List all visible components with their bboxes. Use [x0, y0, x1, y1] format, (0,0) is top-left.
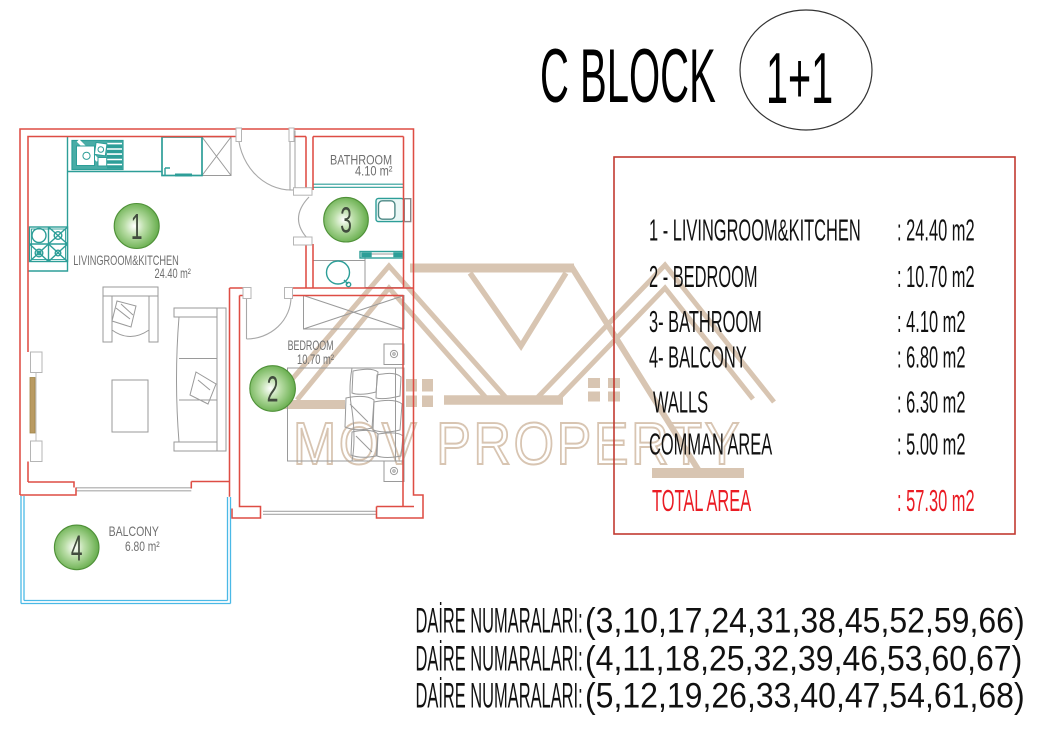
svg-text:COMMAN AREA: COMMAN AREA [649, 428, 772, 462]
svg-text:: 6.30 m2: : 6.30 m2 [897, 386, 965, 420]
svg-text:: 6.80 m2: : 6.80 m2 [897, 341, 965, 375]
svg-text:LIVINGROOM&KITCHEN: LIVINGROOM&KITCHEN [73, 254, 179, 268]
svg-text:2 - BEDROOM: 2 - BEDROOM [649, 261, 758, 295]
svg-text:(5,12,19,26,33,40,47,54,61,68): (5,12,19,26,33,40,47,54,61,68) [585, 677, 1025, 716]
svg-text:(4,11,18,25,32,39,46,53,60,67): (4,11,18,25,32,39,46,53,60,67) [585, 640, 1022, 679]
svg-text:DAİRE NUMARALARI:: DAİRE NUMARALARI: [416, 601, 583, 641]
svg-text:WALLS: WALLS [653, 386, 708, 420]
svg-text:10.70 m²: 10.70 m² [297, 352, 334, 367]
svg-text:4: 4 [71, 528, 83, 568]
svg-text:2: 2 [267, 370, 279, 410]
svg-text:C BLOCK: C BLOCK [540, 33, 716, 118]
svg-text:3- BATHROOM: 3- BATHROOM [649, 306, 762, 340]
svg-text:4.10 m²: 4.10 m² [355, 163, 392, 178]
svg-text:: 57.30 m2: : 57.30 m2 [897, 485, 975, 519]
svg-text:6.80 m²: 6.80 m² [125, 539, 160, 555]
svg-text:1: 1 [131, 207, 143, 247]
svg-text:: 5.00 m2: : 5.00 m2 [897, 428, 965, 462]
svg-text:: 10.70 m2: : 10.70 m2 [897, 261, 975, 295]
svg-text:1 - LIVINGROOM&KITCHEN: 1 - LIVINGROOM&KITCHEN [649, 214, 861, 248]
svg-text:3: 3 [340, 201, 352, 241]
svg-text:1+1: 1+1 [766, 39, 833, 120]
svg-text:24.40 m²: 24.40 m² [155, 267, 192, 281]
svg-text:: 4.10 m2: : 4.10 m2 [897, 306, 965, 340]
svg-text:TOTAL AREA: TOTAL AREA [652, 485, 751, 519]
svg-text:BALCONY: BALCONY [109, 524, 159, 540]
svg-text:DAİRE NUMARALARI:: DAİRE NUMARALARI: [416, 676, 583, 716]
svg-text:(3,10,17,24,31,38,45,52,59,66): (3,10,17,24,31,38,45,52,59,66) [585, 602, 1025, 641]
svg-text:4- BALCONY: 4- BALCONY [649, 341, 747, 375]
svg-text:DAİRE NUMARALARI:: DAİRE NUMARALARI: [416, 639, 583, 679]
svg-text:: 24.40 m2: : 24.40 m2 [897, 214, 975, 248]
